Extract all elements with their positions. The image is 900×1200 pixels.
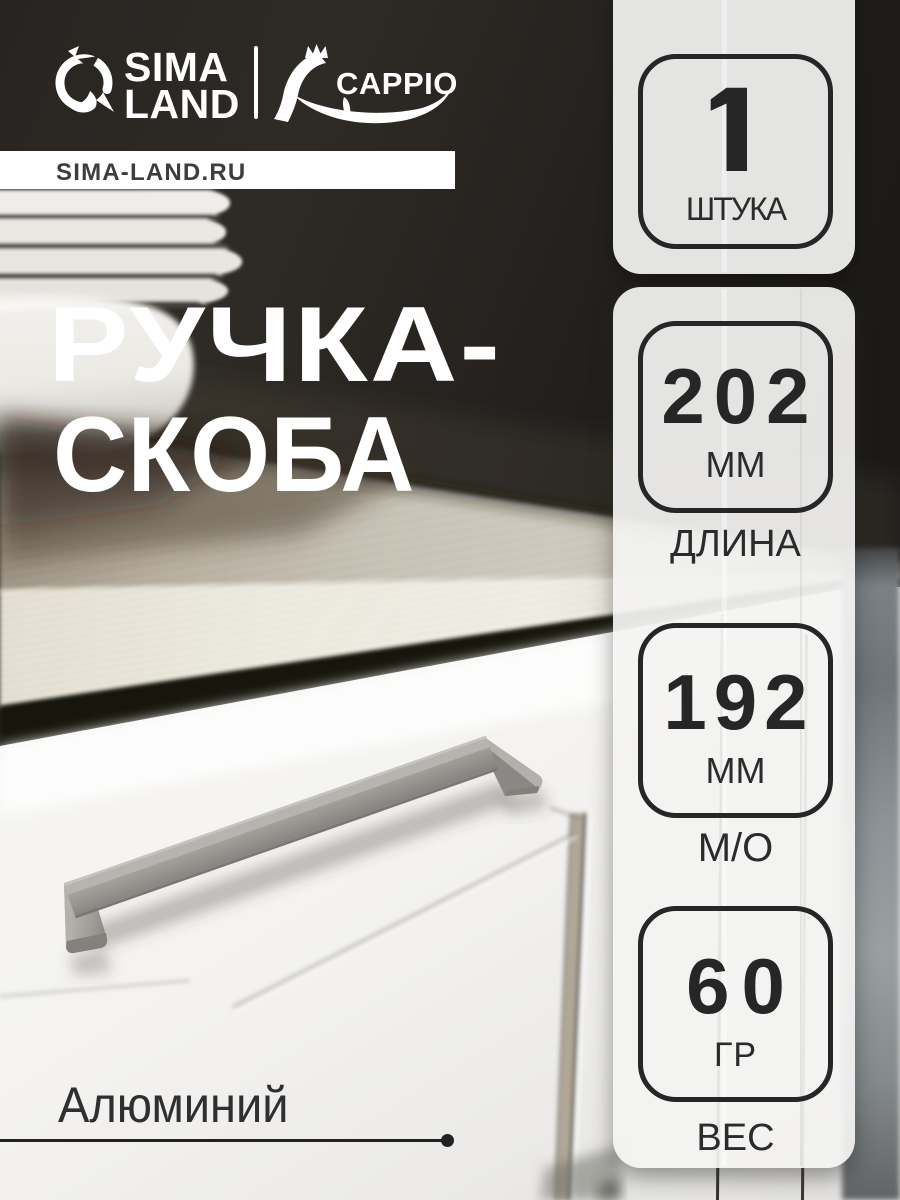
- svg-text:LAND: LAND: [124, 81, 240, 122]
- svg-text:CAPPIO: CAPPIO: [336, 66, 458, 101]
